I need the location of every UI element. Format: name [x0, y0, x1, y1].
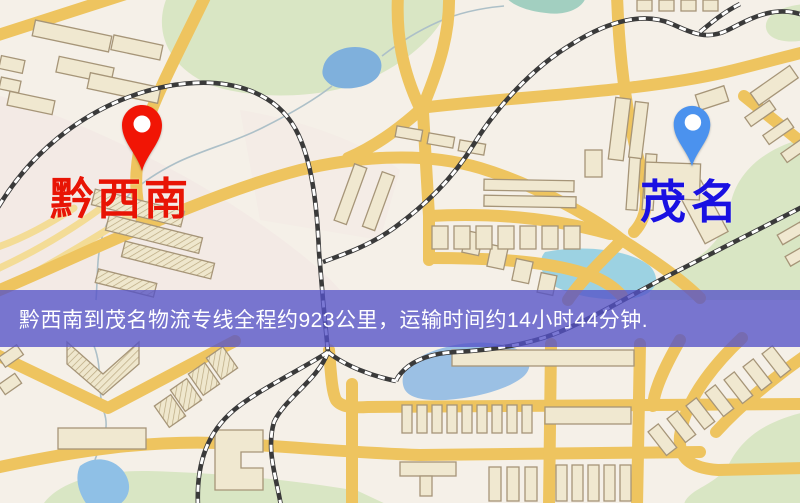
- logistics-route-map: 黔西南 茂名 黔西南到茂名物流专线全程约923公里，运输时间约14小时44分钟.: [0, 0, 800, 503]
- map-canvas[interactable]: [0, 0, 800, 503]
- destination-pin-icon: [669, 105, 715, 169]
- route-info-text: 黔西南到茂名物流专线全程约923公里，运输时间约14小时44分钟.: [19, 304, 648, 334]
- origin-pin-shape: [122, 105, 162, 171]
- origin-pin-hole: [134, 116, 151, 133]
- route-info-banner: 黔西南到茂名物流专线全程约923公里，运输时间约14小时44分钟.: [0, 290, 800, 347]
- destination-marker[interactable]: [669, 105, 715, 169]
- destination-pin-hole: [685, 114, 701, 130]
- origin-pin-icon: [120, 104, 164, 174]
- origin-marker[interactable]: [120, 104, 164, 174]
- destination-label: 茂名: [640, 179, 742, 225]
- origin-label: 黔西南: [50, 178, 191, 222]
